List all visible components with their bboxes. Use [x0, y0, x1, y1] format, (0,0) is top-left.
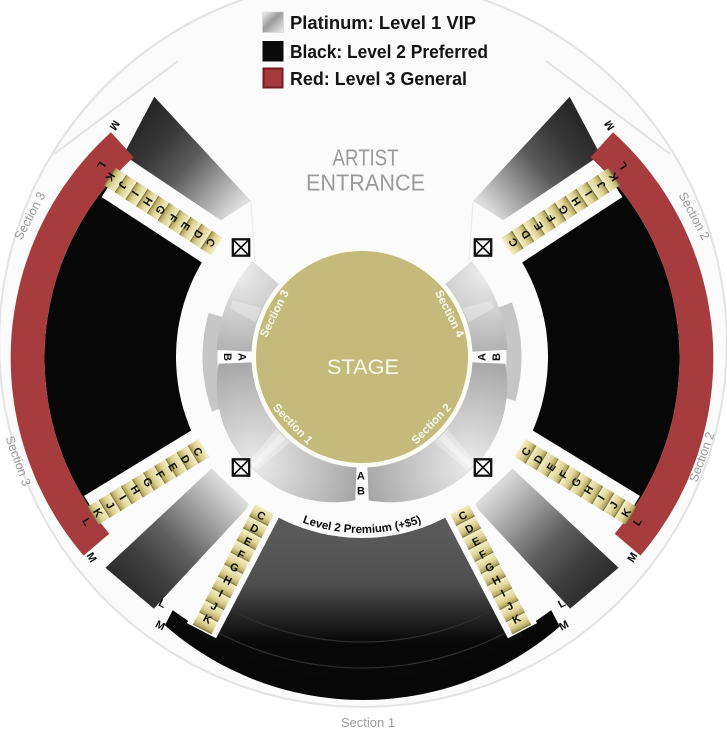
svg-text:Black: Level 2 Preferred: Black: Level 2 Preferred: [290, 41, 488, 62]
svg-text:B: B: [357, 486, 365, 498]
svg-text:B: B: [491, 353, 503, 361]
svg-text:Section 1: Section 1: [341, 715, 395, 730]
svg-text:Platinum: Level 1 VIP: Platinum: Level 1 VIP: [290, 12, 476, 33]
svg-text:A: A: [477, 353, 489, 361]
svg-text:A: A: [357, 471, 365, 483]
svg-text:B: B: [221, 353, 233, 361]
svg-text:ENTRANCE: ENTRANCE: [306, 170, 425, 196]
svg-text:A: A: [236, 353, 248, 361]
svg-text:Red: Level 3 General: Red: Level 3 General: [290, 68, 467, 89]
svg-text:ARTIST: ARTIST: [333, 145, 399, 171]
svg-text:STAGE: STAGE: [327, 355, 399, 379]
